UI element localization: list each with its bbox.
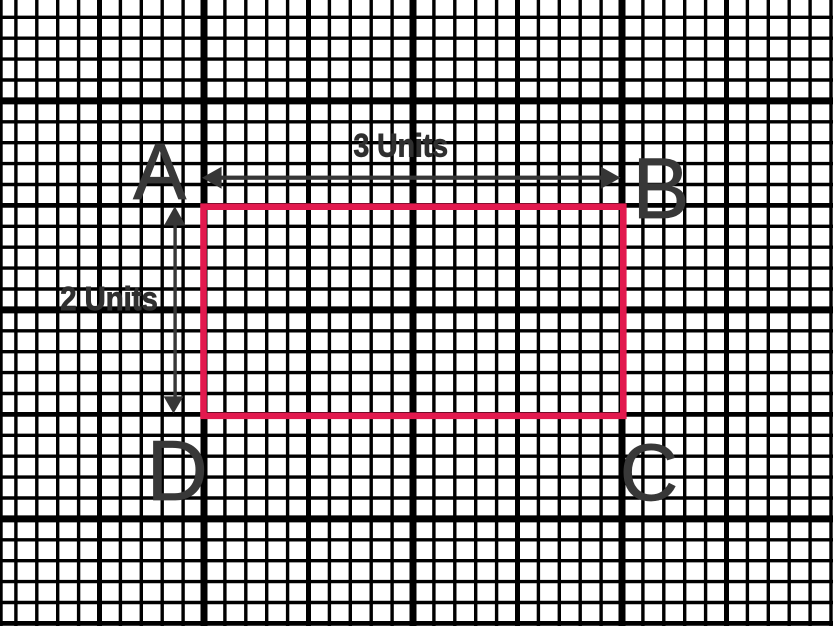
svg-text:3 Units: 3 Units [354, 127, 449, 163]
svg-text:A: A [133, 127, 187, 216]
svg-text:D: D [147, 424, 208, 519]
svg-text:C: C [620, 428, 679, 518]
svg-text:2 Units: 2 Units [60, 280, 158, 317]
svg-text:B: B [632, 141, 689, 237]
